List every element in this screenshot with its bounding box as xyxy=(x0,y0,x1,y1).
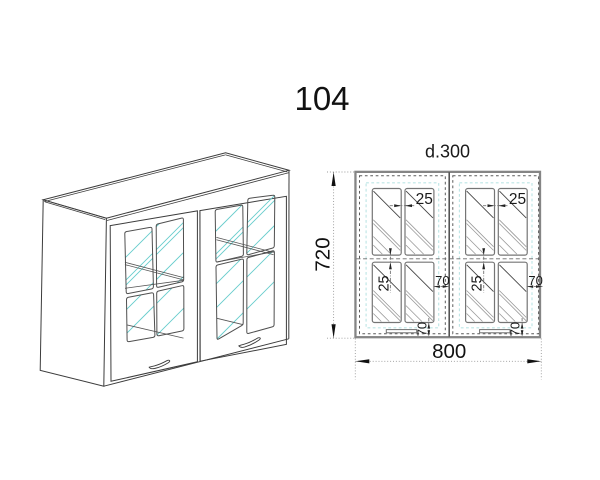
svg-text:720: 720 xyxy=(312,237,335,271)
svg-text:104: 104 xyxy=(294,80,349,117)
svg-text:800: 800 xyxy=(432,340,466,363)
svg-text:25: 25 xyxy=(376,275,392,291)
svg-text:25: 25 xyxy=(509,191,526,208)
svg-text:70: 70 xyxy=(508,322,523,336)
svg-text:d.300: d.300 xyxy=(425,142,470,162)
svg-text:70: 70 xyxy=(528,273,542,288)
svg-text:70: 70 xyxy=(435,273,449,288)
svg-text:25: 25 xyxy=(416,191,433,208)
svg-text:70: 70 xyxy=(414,322,429,336)
svg-text:25: 25 xyxy=(470,275,486,291)
